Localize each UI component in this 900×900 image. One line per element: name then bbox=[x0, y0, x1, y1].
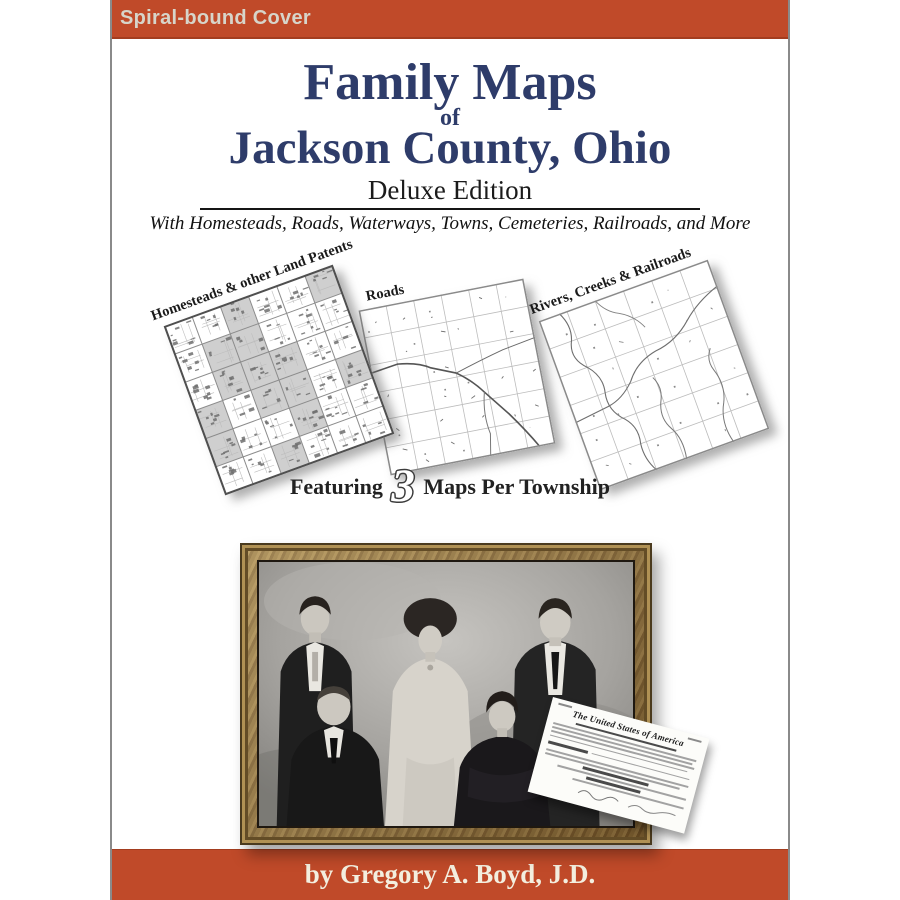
byline-text: by Gregory A. Boyd, J.D. bbox=[305, 859, 596, 890]
binding-banner-label: Spiral-bound Cover bbox=[112, 0, 788, 30]
featuring-prefix: Featuring bbox=[290, 474, 383, 499]
page-background: Spiral-bound Cover Family Maps of Jackso… bbox=[0, 0, 900, 900]
tagline: With Homesteads, Roads, Waterways, Towns… bbox=[112, 213, 788, 236]
map-thumb-rivers: Rivers, Creeks & Railroads bbox=[539, 260, 770, 491]
title-line-2: Jackson County, Ohio bbox=[112, 125, 788, 172]
title-line-1: Family Maps bbox=[112, 57, 788, 109]
featuring-suffix: Maps Per Township bbox=[423, 474, 610, 499]
title-block: Family Maps of Jackson County, Ohio Delu… bbox=[112, 39, 788, 236]
featuring-count: 3 bbox=[391, 460, 415, 512]
binding-banner: Spiral-bound Cover bbox=[112, 0, 788, 39]
book-cover: Spiral-bound Cover Family Maps of Jackso… bbox=[110, 0, 790, 900]
featuring-line: Featuring 3 Maps Per Township bbox=[112, 474, 788, 500]
roads-map-graphic bbox=[359, 279, 556, 476]
byline-bar: by Gregory A. Boyd, J.D. bbox=[112, 849, 788, 900]
edition-label: Deluxe Edition bbox=[112, 177, 788, 204]
map-thumb-homesteads: Homesteads & other Land Patents bbox=[164, 265, 395, 496]
divider-rule bbox=[200, 208, 700, 210]
map-thumb-roads: Roads bbox=[359, 279, 556, 476]
